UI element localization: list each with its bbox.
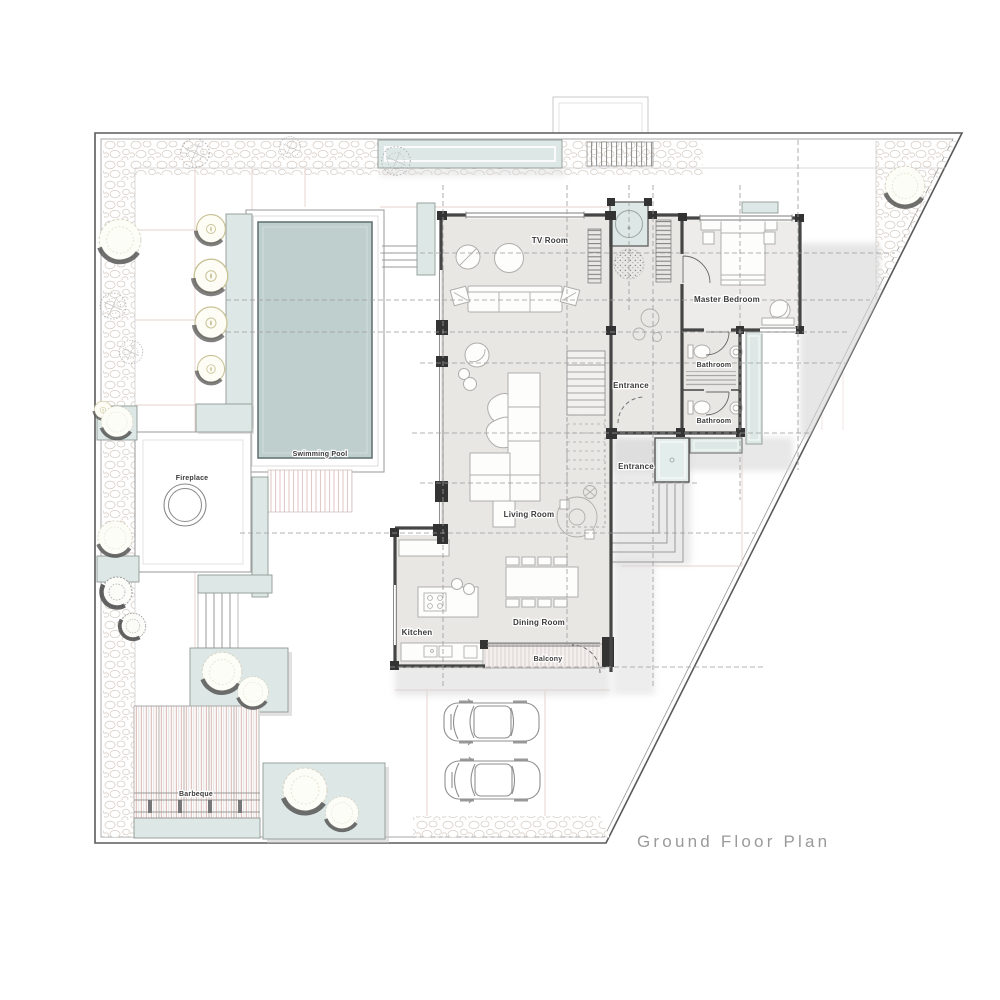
label-swimming-pool: Swimming Pool: [293, 451, 348, 458]
fireplace-circle-icon: [164, 484, 206, 526]
label-living-room: Living Room: [504, 510, 555, 519]
label-barbeque: Barbeque: [179, 791, 213, 798]
barbeque-pergola: [134, 706, 260, 818]
label-entrance-lower: Entrance: [618, 462, 654, 471]
car-icon: [445, 757, 540, 803]
label-entrance-upper: Entrance: [613, 381, 649, 390]
pool-water: [258, 222, 372, 458]
terrace-steps: [198, 592, 238, 648]
label-dining-room: Dining Room: [513, 618, 565, 627]
stairs-icon: [587, 142, 653, 166]
pool-deck-stripes: [268, 470, 352, 512]
floor-plan-page: TV Room Master Bedroom Bathroom Bathroom…: [0, 0, 1000, 1000]
label-tv-room: TV Room: [532, 236, 569, 245]
car-icon: [444, 699, 539, 745]
label-fireplace: Fireplace: [176, 475, 209, 482]
page-title: Ground Floor Plan: [637, 832, 830, 851]
floor-plan-canvas: TV Room Master Bedroom Bathroom Bathroom…: [0, 0, 1000, 1000]
label-kitchen: Kitchen: [402, 628, 433, 637]
label-master-bedroom: Master Bedroom: [694, 295, 760, 304]
label-balcony: Balcony: [534, 656, 563, 663]
label-bathroom-2: Bathroom: [697, 418, 732, 425]
label-bathroom-1: Bathroom: [697, 362, 732, 369]
